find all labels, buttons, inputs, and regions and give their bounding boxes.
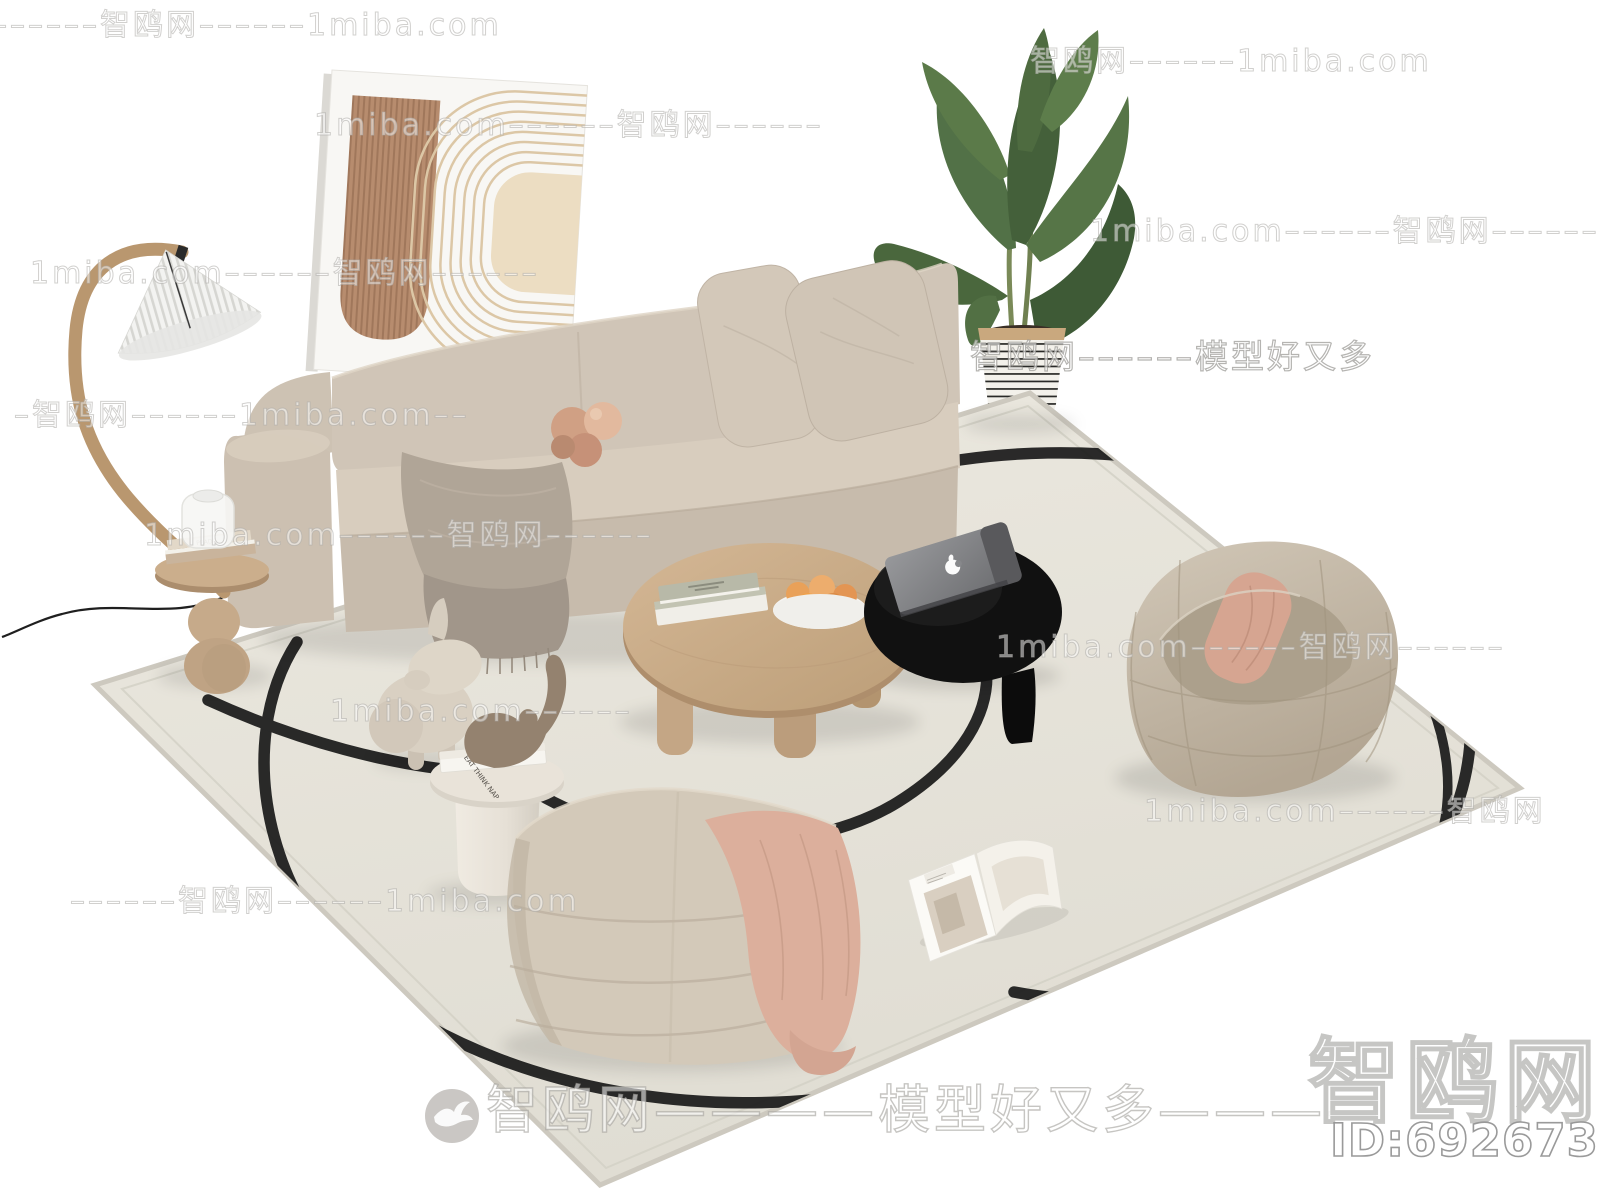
bird-logo-icon — [422, 1086, 482, 1146]
sofa-left-arm — [224, 434, 334, 628]
art-arch-stripes — [338, 95, 441, 342]
lounge-chair — [507, 789, 860, 1075]
footer-watermark-text: 智鸥网————模型好又多———— — [486, 1068, 1382, 1143]
render-canvas: PRADA — [0, 0, 1600, 1200]
glass-jar — [182, 490, 234, 548]
model-id: ID:692673929 — [1330, 1114, 1600, 1167]
